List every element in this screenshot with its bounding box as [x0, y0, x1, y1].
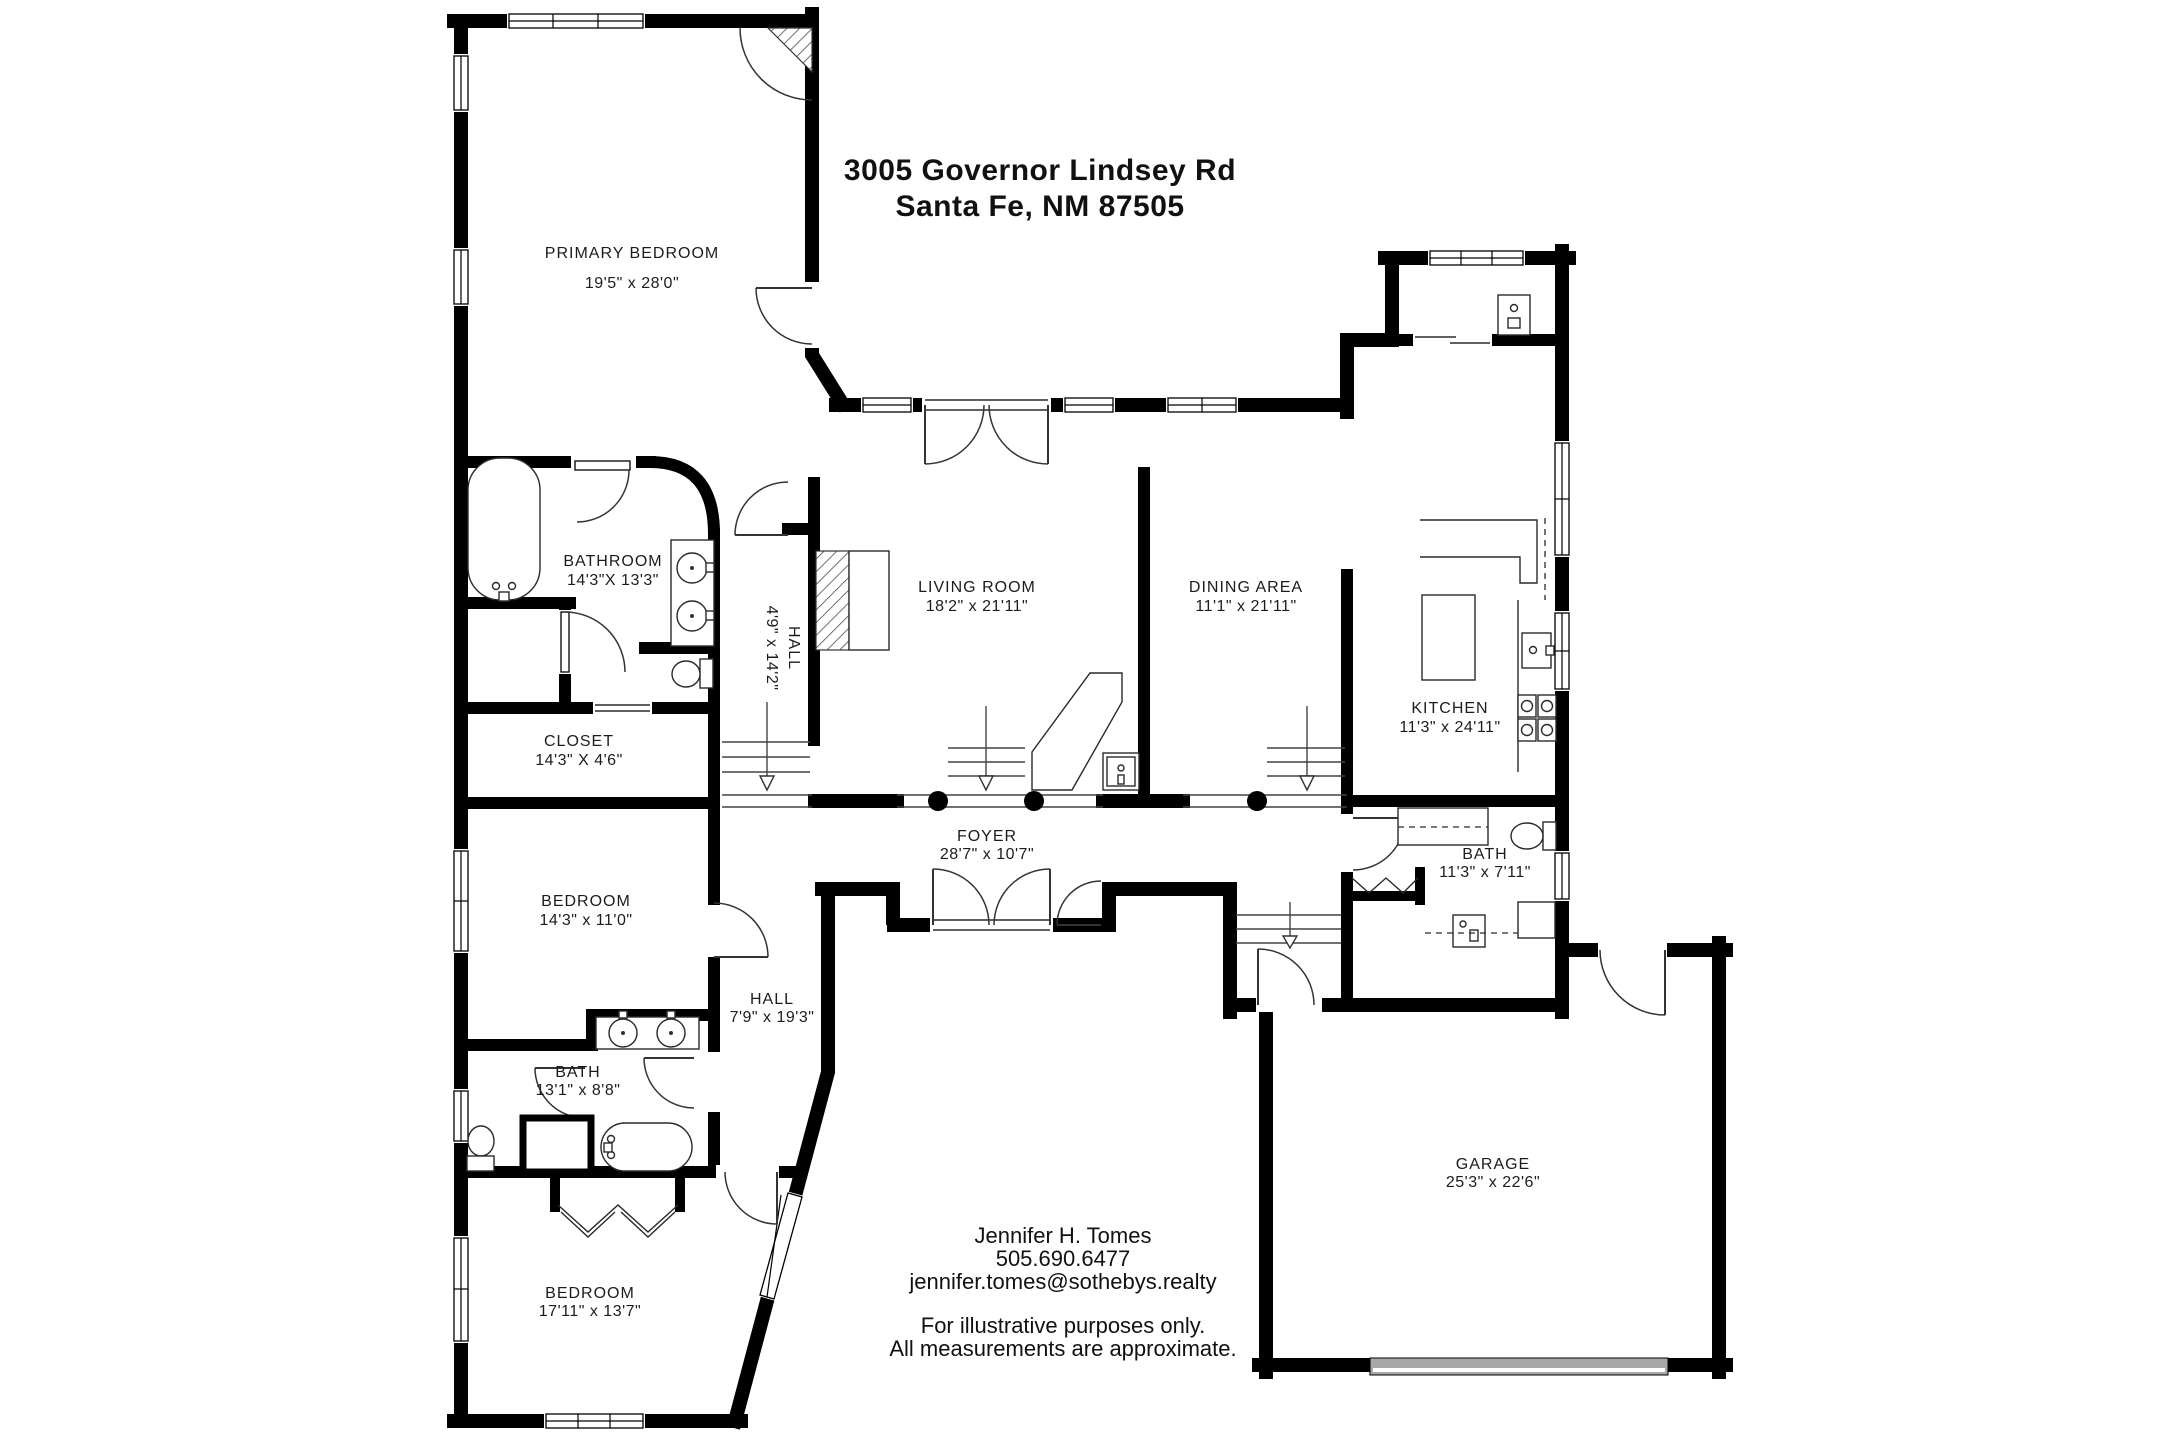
room-dims: 11'3" x 7'11"	[1439, 864, 1531, 881]
door-swing	[735, 482, 788, 535]
mudroom-fixtures	[1425, 902, 1555, 947]
room-name: DINING AREA	[1189, 579, 1303, 596]
door-swing	[707, 903, 768, 957]
room-dims: 14'3"X 13'3"	[567, 572, 659, 589]
bar-sink-icon	[1103, 753, 1139, 790]
bath-east-counter	[1398, 808, 1488, 845]
disclaimer-line-2: All measurements are approximate.	[889, 1336, 1236, 1361]
room-label-primary-bedroom: PRIMARY BEDROOM 19'5" x 28'0"	[545, 245, 719, 292]
door-swing	[1340, 814, 1405, 872]
toilet-icon	[672, 659, 713, 688]
window	[1063, 396, 1115, 414]
room-dims: 18'2" x 21'11"	[926, 598, 1028, 615]
laundry-appliance-icon	[1498, 295, 1530, 335]
agent-name: Jennifer H. Tomes	[975, 1223, 1152, 1248]
room-name: BATHROOM	[563, 553, 662, 570]
room-dims: 11'1" x 21'11"	[1195, 598, 1296, 615]
column	[1247, 791, 1267, 811]
room-dims: 14'3" x 11'0"	[539, 912, 632, 929]
disclaimer: For illustrative purposes only. All meas…	[889, 1313, 1236, 1361]
window	[1428, 249, 1525, 267]
column	[928, 791, 948, 811]
room-label-bath-mid: BATH 13'1" x 8'8"	[536, 1064, 621, 1099]
door-swing	[1598, 943, 1667, 1015]
room-label-dining-area: DINING AREA 11'1" x 21'11"	[1189, 579, 1303, 615]
room-label-garage: GARAGE 25'3" x 22'6"	[1446, 1156, 1540, 1191]
window	[507, 12, 645, 30]
room-label-kitchen: KITCHEN 11'3" x 24'11"	[1399, 700, 1500, 736]
toilet-icon	[467, 1126, 494, 1171]
window	[452, 849, 470, 953]
door-entry-double	[930, 869, 1053, 932]
room-name: KITCHEN	[1411, 700, 1488, 717]
column	[1024, 791, 1044, 811]
door-swing	[644, 1052, 721, 1112]
window	[758, 1191, 804, 1301]
room-label-closet: CLOSET 14'3" X 4'6"	[535, 733, 623, 769]
room-dims: 13'1" x 8'8"	[536, 1082, 621, 1099]
room-name: HALL	[750, 991, 794, 1008]
kitchen-island	[1422, 595, 1475, 680]
closet-bifold-doors-icon	[558, 1205, 678, 1237]
window	[1553, 611, 1571, 691]
fireplace-primary-icon	[740, 28, 812, 100]
doors	[535, 282, 1667, 1224]
bathtub-icon	[601, 1123, 692, 1171]
window	[452, 1089, 470, 1143]
room-name: BEDROOM	[545, 1285, 635, 1302]
double-vanity-icon	[671, 540, 714, 646]
stairs-hall-upper	[722, 702, 812, 807]
window	[544, 1412, 645, 1430]
room-dims: 25'3" x 22'6"	[1446, 1174, 1540, 1191]
room-dims: 17'11" x 13'7"	[539, 1303, 641, 1320]
room-dims: 4'9" x 14'2"	[763, 606, 780, 691]
window	[452, 54, 470, 112]
room-dims: 28'7" x 10'7"	[940, 846, 1034, 863]
toilet-icon	[1511, 822, 1556, 850]
bathtub-icon	[468, 458, 540, 601]
window	[1553, 441, 1571, 557]
door-french	[922, 398, 1051, 464]
stairs-dining-to-foyer	[1183, 706, 1347, 807]
floor-plan-svg: PRIMARY BEDROOM 19'5" x 28'0" BATHROOM 1…	[0, 0, 2173, 1448]
closet-bifold-doors-icon	[1352, 878, 1418, 893]
room-dims: 14'3" X 4'6"	[535, 752, 623, 769]
door-sliding	[1413, 333, 1492, 347]
room-name: PRIMARY BEDROOM	[545, 245, 719, 262]
room-dims: 11'3" x 24'11"	[1399, 719, 1500, 736]
room-label-bathroom: BATHROOM 14'3"X 13'3"	[563, 553, 662, 589]
window	[861, 396, 913, 414]
room-dims: 7'9" x 19'3"	[730, 1009, 815, 1026]
door-sliding	[593, 701, 652, 715]
room-label-bedroom-mid: BEDROOM 14'3" x 11'0"	[539, 893, 632, 929]
room-name: HALL	[785, 626, 802, 670]
address-title: 3005 Governor Lindsey Rd Santa Fe, NM 87…	[844, 154, 1236, 223]
room-label-hall-upper: HALL 4'9" x 14'2"	[763, 606, 802, 691]
window	[1553, 851, 1571, 901]
room-label-living-room: LIVING ROOM 18'2" x 21'11"	[918, 579, 1036, 615]
room-name: BATH	[1462, 846, 1507, 863]
room-name: LIVING ROOM	[918, 579, 1036, 596]
room-name: FOYER	[957, 828, 1017, 845]
room-label-bedroom-lower: BEDROOM 17'11" x 13'7"	[539, 1285, 641, 1320]
agent-email: jennifer.tomes@sothebys.realty	[908, 1269, 1216, 1294]
door-swing	[756, 282, 819, 348]
window	[452, 248, 470, 306]
room-label-bath-east: BATH 11'3" x 7'11"	[1439, 846, 1531, 881]
room-name: CLOSET	[544, 733, 614, 750]
stairs-foyer-to-garage	[1236, 902, 1341, 948]
garage-door	[1370, 1358, 1668, 1375]
agent-info: Jennifer H. Tomes 505.690.6477 jennifer.…	[908, 1223, 1216, 1294]
window	[1166, 396, 1238, 414]
door-swing	[558, 610, 625, 674]
disclaimer-line-1: For illustrative purposes only.	[921, 1313, 1206, 1338]
room-name: GARAGE	[1456, 1156, 1530, 1173]
door-swing	[716, 1165, 779, 1224]
floor-plan-page: PRIMARY BEDROOM 19'5" x 28'0" BATHROOM 1…	[0, 0, 2173, 1448]
address-line-2: Santa Fe, NM 87505	[895, 190, 1184, 223]
address-line-1: 3005 Governor Lindsey Rd	[844, 154, 1236, 187]
kitchen-sink-icon	[1522, 633, 1554, 668]
shower-icon	[523, 1118, 591, 1172]
door-swing	[571, 455, 636, 522]
stove-icon	[1518, 695, 1556, 741]
agent-phone: 505.690.6477	[996, 1246, 1131, 1271]
room-dims: 19'5" x 28'0"	[585, 275, 679, 292]
room-name: BATH	[555, 1064, 600, 1081]
room-label-hall-lower: HALL 7'9" x 19'3"	[730, 991, 815, 1026]
room-name: BEDROOM	[541, 893, 631, 910]
vanity-icon	[596, 1011, 699, 1049]
door-swing	[1256, 949, 1322, 1012]
fireplace-living-icon	[816, 551, 889, 650]
room-label-foyer: FOYER 28'7" x 10'7"	[940, 828, 1034, 863]
window	[452, 1236, 470, 1343]
